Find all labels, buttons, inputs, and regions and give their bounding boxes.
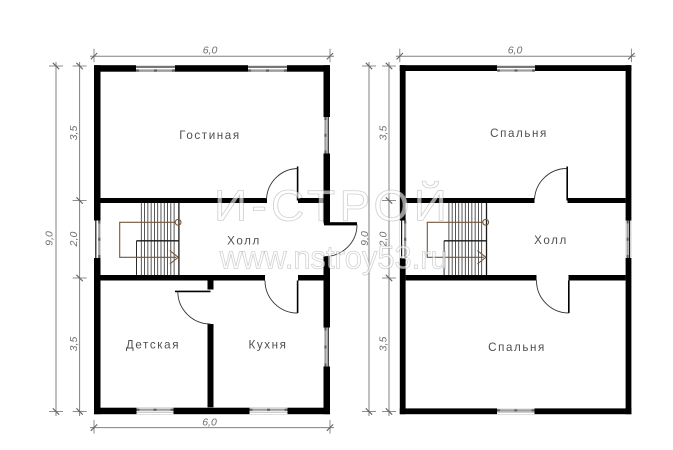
svg-text:Холл: Холл <box>534 234 568 247</box>
svg-text:И-СТРОЙ: И-СТРОЙ <box>214 180 451 231</box>
svg-text:Детская: Детская <box>126 338 180 351</box>
svg-text:9,0: 9,0 <box>44 231 56 246</box>
svg-text:Кухня: Кухня <box>248 338 287 351</box>
svg-text:www.nstroy53.ru: www.nstroy53.ru <box>219 240 448 276</box>
svg-text:Гостиная: Гостиная <box>179 129 240 142</box>
svg-text:6,0: 6,0 <box>508 45 523 57</box>
svg-text:6,0: 6,0 <box>203 45 218 57</box>
svg-text:Спальня: Спальня <box>488 341 546 354</box>
svg-text:Спальня: Спальня <box>490 127 548 140</box>
svg-text:2,0: 2,0 <box>68 232 80 248</box>
svg-text:3,5: 3,5 <box>378 337 390 352</box>
svg-text:3,5: 3,5 <box>378 126 390 141</box>
svg-text:3,5: 3,5 <box>68 337 80 352</box>
svg-text:3,5: 3,5 <box>68 126 80 141</box>
svg-text:6,0: 6,0 <box>202 416 217 428</box>
